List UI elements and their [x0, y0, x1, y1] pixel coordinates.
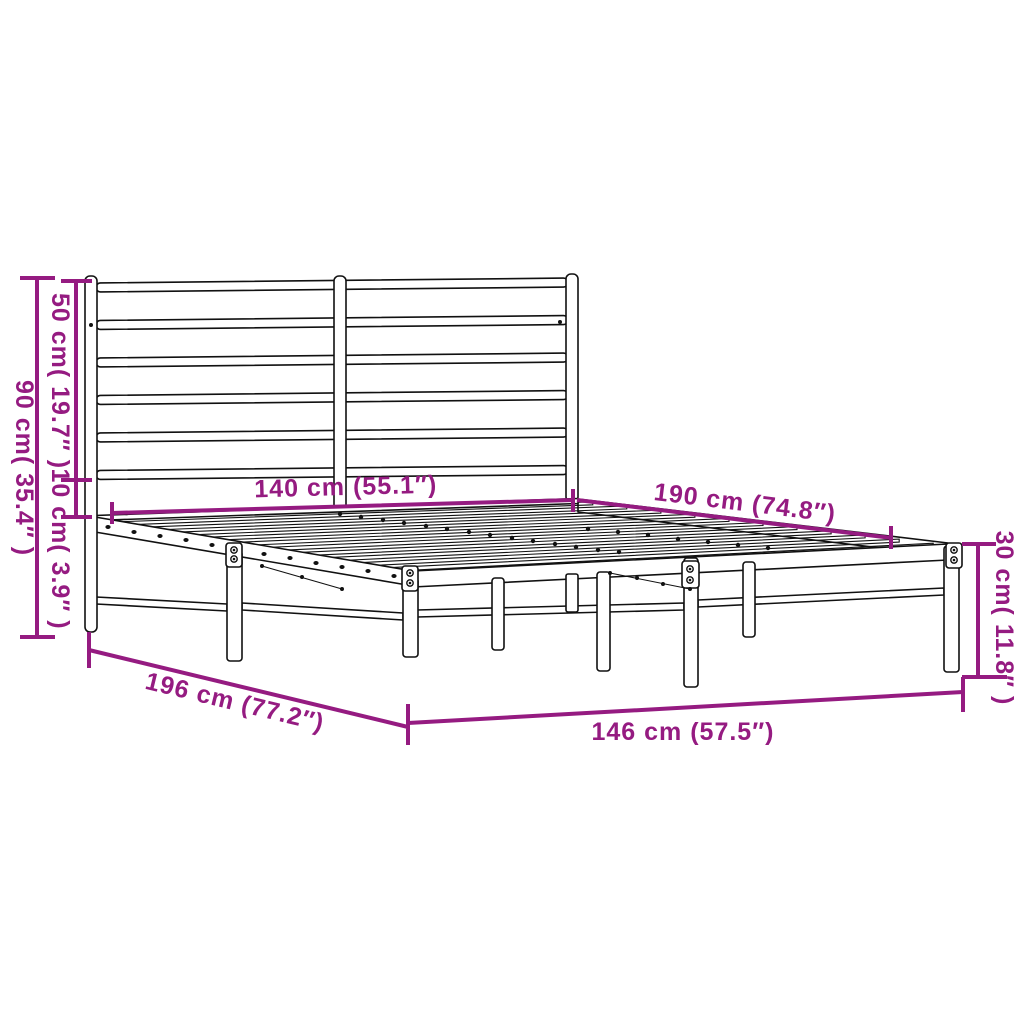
headboard-left-post	[85, 276, 97, 632]
label-inner-width: 140 cm (55.1″)	[254, 471, 438, 504]
dimension-diagram: 90 cm( 35.4″ ) 50 cm( 19.7″ ) 10 cm( 3.9…	[0, 0, 1024, 1024]
leg-foot-mid-rear	[597, 572, 610, 671]
leg-rear-right	[743, 562, 755, 637]
headboard-screw-right	[558, 320, 562, 324]
support-post	[566, 574, 578, 612]
headboard-right-post	[566, 274, 578, 502]
label-clearance: 10 cm( 3.9″ )	[46, 468, 74, 629]
dim-line-total-length	[89, 632, 408, 745]
label-total-width: 146 cm (57.5″)	[591, 718, 774, 746]
leg-braces	[96, 588, 944, 620]
label-total-height: 90 cm( 35.4″ )	[10, 380, 38, 556]
headboard-rails	[96, 278, 568, 479]
headboard-screw-left	[89, 323, 93, 327]
leg-rear-center	[492, 578, 504, 650]
label-headboard-height: 50 cm( 19.7″ )	[46, 293, 74, 469]
label-frame-height: 30 cm( 11.8″ )	[990, 531, 1018, 706]
bed-frame-drawing: 90 cm( 35.4″ ) 50 cm( 19.7″ ) 10 cm( 3.9…	[0, 0, 1024, 1024]
